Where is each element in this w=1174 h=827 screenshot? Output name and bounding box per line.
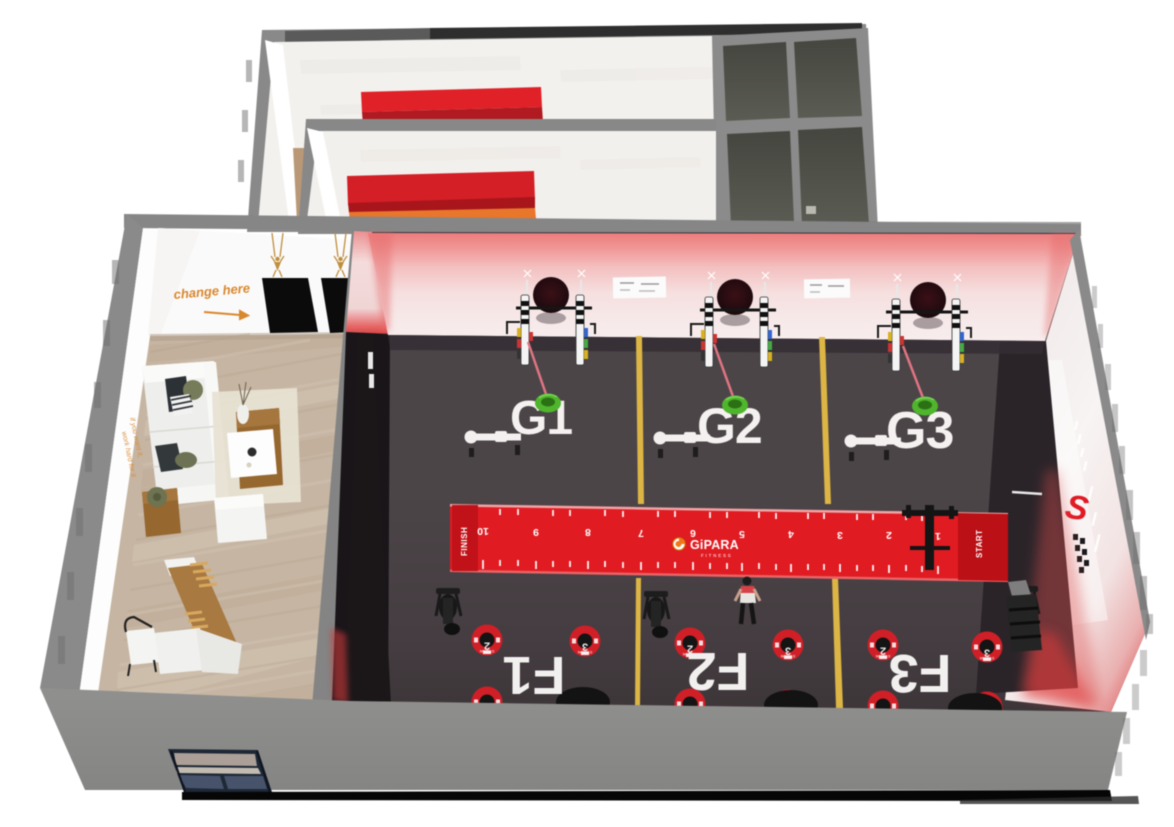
svg-text:FITNESS: FITNESS: [701, 553, 733, 558]
svg-text:F1: F1: [502, 645, 565, 705]
svg-text:FINISH: FINISH: [460, 527, 469, 556]
svg-text:GiPARA: GiPARA: [690, 538, 739, 552]
svg-text:STATION: STATION: [875, 654, 890, 658]
svg-text:F2: F2: [686, 641, 749, 701]
svg-text:STATION: STATION: [577, 650, 592, 654]
svg-text:9: 9: [533, 526, 539, 538]
svg-text:2: 2: [886, 529, 892, 541]
svg-text:1: 1: [935, 530, 941, 542]
svg-text:8: 8: [585, 526, 591, 538]
svg-text:F3: F3: [888, 643, 951, 703]
svg-text:7: 7: [638, 527, 644, 539]
svg-text:START: START: [975, 529, 984, 558]
svg-text:STATION: STATION: [979, 656, 994, 660]
svg-text:STATION: STATION: [479, 649, 494, 653]
svg-text:STATION: STATION: [780, 654, 795, 658]
svg-text:4: 4: [788, 528, 794, 540]
svg-text:10: 10: [477, 525, 489, 537]
svg-text:3: 3: [837, 529, 843, 541]
svg-text:5: 5: [739, 528, 745, 540]
